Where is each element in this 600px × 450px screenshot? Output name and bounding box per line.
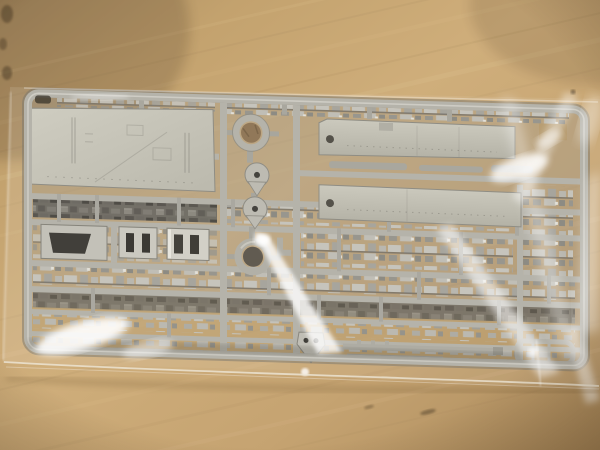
photo-vignette [0,0,600,450]
photo-canvas [0,0,600,450]
model-kit-sprue-photo [0,0,600,450]
